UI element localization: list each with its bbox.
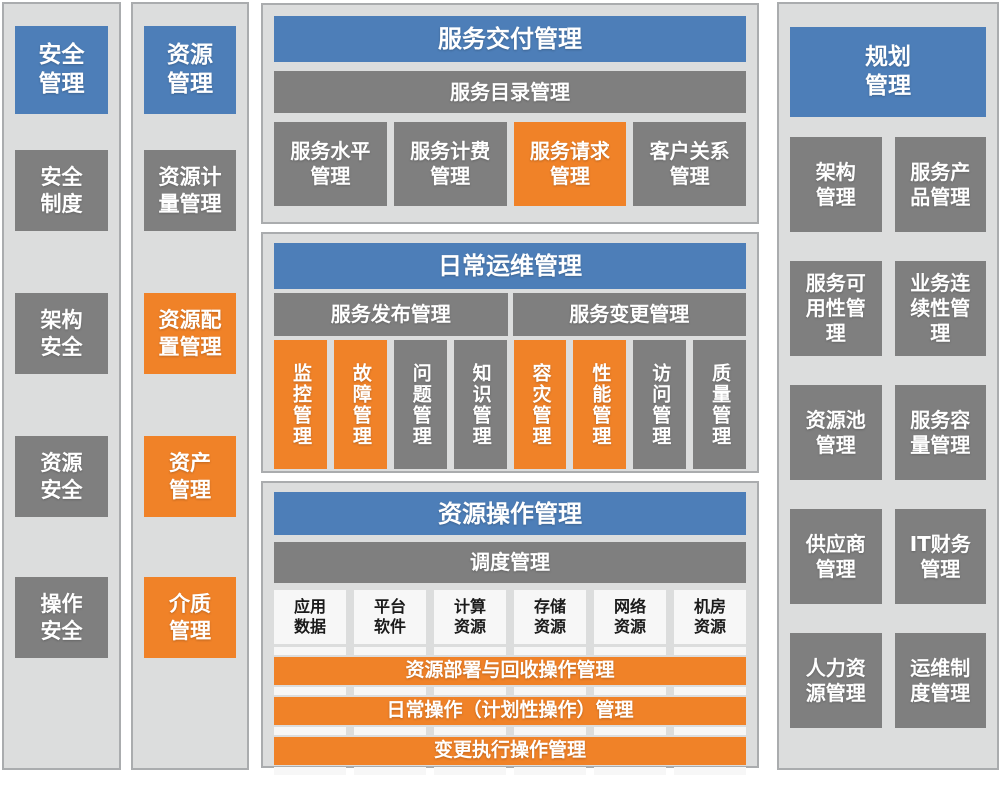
daily-planned-ops-bar: 日常操作（计划性操作）管理 [274, 697, 746, 725]
storage-resource-box: 存储 资源 [514, 590, 586, 644]
service-level-box: 服务水平 管理 [274, 122, 387, 206]
column-strip [674, 647, 746, 655]
column-strip [514, 767, 586, 775]
problem-box: 问题管理 [394, 340, 447, 469]
ops-rules-mgmt-box: 运维制 度管理 [895, 633, 987, 728]
column-strip [514, 727, 586, 735]
business-continuity-mgmt-box: 业务连 续性管 理 [895, 261, 987, 356]
monitoring-box: 监控管理 [274, 340, 327, 469]
middle-column: 服务交付管理 服务目录管理 服务水平 管理 服务计费 管理 服务请求 管理 客户… [261, 3, 759, 768]
column-strip [514, 687, 586, 695]
column-strip [594, 687, 666, 695]
architecture-mgmt-box: 架构 管理 [790, 137, 882, 232]
platform-software-box: 平台 软件 [354, 590, 426, 644]
daily-ops-panel: 日常运维管理 服务发布管理 服务变更管理 监控管理 故障管理 问题管理 知识管理… [261, 232, 759, 473]
supplier-mgmt-box: 供应商 管理 [790, 509, 882, 604]
column-strip-row [274, 687, 746, 695]
security-item-rules: 安全 制度 [15, 150, 108, 231]
itsm-framework-diagram: 安全 管理 安全 制度 架构 安全 资源 安全 操作 安全 资源 管理 资源计 … [0, 0, 1000, 785]
column-strip [434, 767, 506, 775]
service-change-bar: 服务变更管理 [513, 293, 747, 336]
resource-pool-mgmt-box: 资源池 管理 [790, 385, 882, 480]
service-request-box: 服务请求 管理 [514, 122, 627, 206]
column-strip [274, 727, 346, 735]
planning-grid: 架构 管理 服务产 品管理 服务可 用性管 理 业务连 续性管 理 资源池 管理… [790, 137, 986, 728]
planning-panel: 规划 管理 架构 管理 服务产 品管理 服务可 用性管 理 业务连 续性管 理 … [777, 2, 999, 770]
access-box: 访问管理 [633, 340, 686, 469]
resource-item-asset: 资产 管理 [144, 436, 236, 517]
incident-box: 故障管理 [334, 340, 387, 469]
app-data-box: 应用 数据 [274, 590, 346, 644]
column-strip [674, 687, 746, 695]
column-strip [514, 647, 586, 655]
disaster-recovery-box: 容灾管理 [514, 340, 567, 469]
daily-ops-subheaders: 服务发布管理 服务变更管理 [274, 293, 746, 336]
resource-item-configuration: 资源配 置管理 [144, 293, 236, 374]
service-catalog-bar: 服务目录管理 [274, 71, 746, 113]
security-item-operation: 操作 安全 [15, 577, 108, 658]
it-finance-mgmt-box: IT财务 管理 [895, 509, 987, 604]
column-strip [354, 767, 426, 775]
column-strip [434, 647, 506, 655]
change-execution-ops-bar: 变更执行操作管理 [274, 737, 746, 765]
security-item-resource: 资源 安全 [15, 436, 108, 517]
column-strip [274, 647, 346, 655]
deploy-reclaim-ops-bar: 资源部署与回收操作管理 [274, 657, 746, 685]
column-strip-row [274, 727, 746, 735]
resource-ops-panel: 资源操作管理 调度管理 应用 数据 平台 软件 计算 资源 存储 资源 网络 资… [261, 481, 759, 768]
security-panel: 安全 管理 安全 制度 架构 安全 资源 安全 操作 安全 [2, 2, 121, 770]
service-delivery-title: 服务交付管理 [274, 16, 746, 62]
column-strip [674, 727, 746, 735]
column-strip [354, 647, 426, 655]
datacenter-resource-box: 机房 资源 [674, 590, 746, 644]
service-capacity-mgmt-box: 服务容 量管理 [895, 385, 987, 480]
customer-relation-box: 客户关系 管理 [633, 122, 746, 206]
planning-header: 规划 管理 [790, 27, 986, 117]
scheduling-bar: 调度管理 [274, 542, 746, 583]
service-product-mgmt-box: 服务产 品管理 [895, 137, 987, 232]
performance-box: 性能管理 [573, 340, 626, 469]
service-availability-mgmt-box: 服务可 用性管 理 [790, 261, 882, 356]
quality-box: 质量管理 [693, 340, 746, 469]
human-resource-mgmt-box: 人力资 源管理 [790, 633, 882, 728]
security-item-architecture: 架构 安全 [15, 293, 108, 374]
resource-item-metering: 资源计 量管理 [144, 150, 236, 231]
column-strip [594, 767, 666, 775]
column-strip-row [274, 647, 746, 655]
security-header: 安全 管理 [15, 26, 108, 114]
column-strip [274, 767, 346, 775]
service-billing-box: 服务计费 管理 [394, 122, 507, 206]
resource-panel: 资源 管理 资源计 量管理 资源配 置管理 资产 管理 介质 管理 [131, 2, 249, 770]
resource-header: 资源 管理 [144, 26, 236, 114]
daily-ops-title: 日常运维管理 [274, 243, 746, 289]
column-strip [354, 727, 426, 735]
network-resource-box: 网络 资源 [594, 590, 666, 644]
knowledge-box: 知识管理 [454, 340, 507, 469]
resource-types-row: 应用 数据 平台 软件 计算 资源 存储 资源 网络 资源 机房 资源 [274, 590, 746, 644]
resource-item-media: 介质 管理 [144, 577, 236, 658]
service-release-bar: 服务发布管理 [274, 293, 508, 336]
column-strip [354, 687, 426, 695]
column-strip [594, 727, 666, 735]
column-strip-row [274, 767, 746, 775]
resource-ops-title: 资源操作管理 [274, 492, 746, 535]
column-strip [274, 687, 346, 695]
column-strip [594, 647, 666, 655]
service-delivery-panel: 服务交付管理 服务目录管理 服务水平 管理 服务计费 管理 服务请求 管理 客户… [261, 3, 759, 224]
service-delivery-row: 服务水平 管理 服务计费 管理 服务请求 管理 客户关系 管理 [274, 122, 746, 206]
column-strip [434, 687, 506, 695]
daily-ops-row: 监控管理 故障管理 问题管理 知识管理 容灾管理 性能管理 访问管理 质量管理 [274, 340, 746, 469]
compute-resource-box: 计算 资源 [434, 590, 506, 644]
column-strip [674, 767, 746, 775]
column-strip [434, 727, 506, 735]
